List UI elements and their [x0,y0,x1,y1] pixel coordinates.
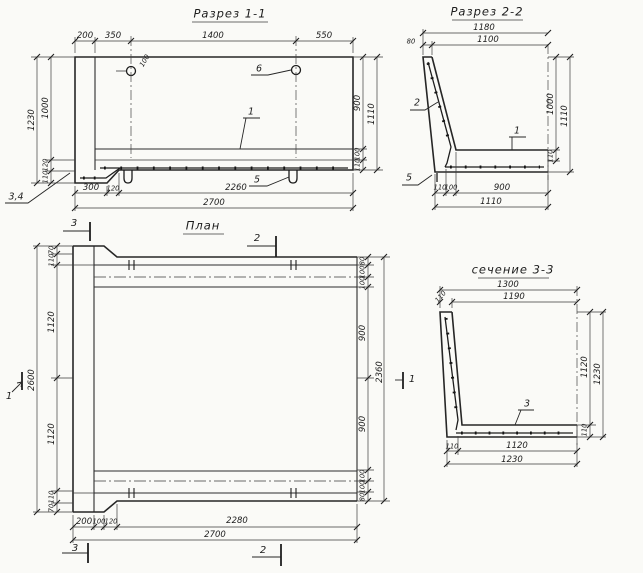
section_2_2-dim-label-6: 1110 [561,105,570,127]
section_1_1-dim-label-4: 550 [316,32,332,41]
section_2_2-callout-label-9: 5 [406,173,412,183]
plan-title-label-0: План [186,220,221,232]
section_1_1-dim-label-10: 110 [43,171,50,184]
plan-marker-label-20: 1 [409,375,415,385]
section_1_1-dim-label-11: 900 [354,95,363,111]
plan-marker-label-27: 2 [260,546,266,556]
section_1_1-callout-label-15: 1 [248,107,254,117]
section_2_2-dim-label-2: 1100 [477,36,499,45]
section_3_3-dim-label-10: 1230 [501,456,523,465]
section_1_1-dim-label-14: 110 [355,159,362,172]
plan-dim-label-25: 2700 [204,531,226,540]
plan-dim-label-21: 200 [76,518,92,527]
section_2_2-dim-label-11: 100 [445,185,458,192]
plan-dim-label-4: 110 [49,254,56,267]
section_1_1-dim-label-20: 2260 [225,184,247,193]
section_1_1-dim-label-2: 350 [105,32,121,41]
section_1_1-dim-label-8: 1000 [42,97,51,119]
plan-dim-label-16: 900 [359,416,368,432]
section_1_1-callout-label-16: 5 [254,175,260,185]
section_1_1-dim-label-21: 2700 [203,199,225,208]
section_1_1-callout-label-17: 3,4 [8,192,23,202]
plan-dim-label-8: 110 [49,491,56,504]
section_1_1-callout-label-6: 6 [256,64,262,74]
section_2_2-dim-label-13: 1110 [480,198,502,207]
section_2_2-callout-label-8: 1 [514,126,520,136]
section_3_3-dim-label-5: 1230 [594,363,603,385]
plan-dim-label-18: 100 [360,481,367,494]
section_2_2-dim-label-7: 110 [548,150,555,163]
section_2_2-dim-label-3: 80 [407,39,416,46]
plan-dim-label-9: 70 [49,504,56,513]
plan-dim-label-7: 1120 [48,423,57,445]
section_3_3-dim-label-9: 1120 [506,442,528,451]
section_2_2-dim-label-1: 1180 [473,24,495,33]
plan-marker-label-26: 3 [72,544,78,554]
section_1_1-dim-label-12: 1110 [368,103,377,125]
section_2_2-dim-label-5: 1000 [547,93,556,115]
section_1_1-dim-label-7: 1230 [28,109,37,131]
section_2_2-callout-label-4: 2 [414,98,420,108]
section_1_1-dim-label-19: 120 [107,186,120,193]
plan-dim-label-19: 80 [360,493,367,502]
plan-dim-label-11: 80 [360,257,367,266]
plan-dim-label-14: 900 [359,325,368,341]
section_1_1-dim-label-5: 100 [139,54,151,69]
section_3_3-dim-label-1: 1300 [497,281,519,290]
section_3_3-title-label-0: сечение 3-3 [472,264,555,276]
dimension-labels-layer: Разрез 1-1200350140055010061230100012011… [0,0,643,573]
section_1_1-title-label-0: Разрез 1-1 [193,8,266,20]
section_3_3-dim-label-2: 1190 [503,293,525,302]
section_3_3-dim-label-4: 1120 [581,356,590,378]
plan-dim-label-5: 1120 [48,311,57,333]
section_2_2-dim-label-12: 900 [494,184,510,193]
section_1_1-dim-label-3: 1400 [202,32,224,41]
section_2_2-title-label-0: Разрез 2-2 [450,6,523,18]
plan-marker-label-10: 1 [6,392,12,402]
plan-dim-label-24: 2280 [226,517,248,526]
plan-dim-label-6: 2600 [28,369,37,391]
section_3_3-dim-label-8: 110 [446,444,459,451]
section_3_3-callout-label-7: 3 [524,399,530,409]
section_3_3-dim-label-3: 110 [434,290,448,304]
plan-dim-label-15: 2360 [376,361,385,383]
section_3_3-dim-label-6: 110 [582,424,589,437]
engineering-drawing: Разрез 1-1200350140055010061230100012011… [0,0,643,573]
plan-marker-label-2: 2 [254,234,260,244]
section_1_1-dim-label-1: 200 [77,32,93,41]
plan-marker-label-1: 3 [71,219,77,229]
plan-dim-label-13: 100 [360,277,367,290]
plan-dim-label-23: 120 [105,519,118,526]
section_1_1-dim-label-18: 300 [83,184,99,193]
